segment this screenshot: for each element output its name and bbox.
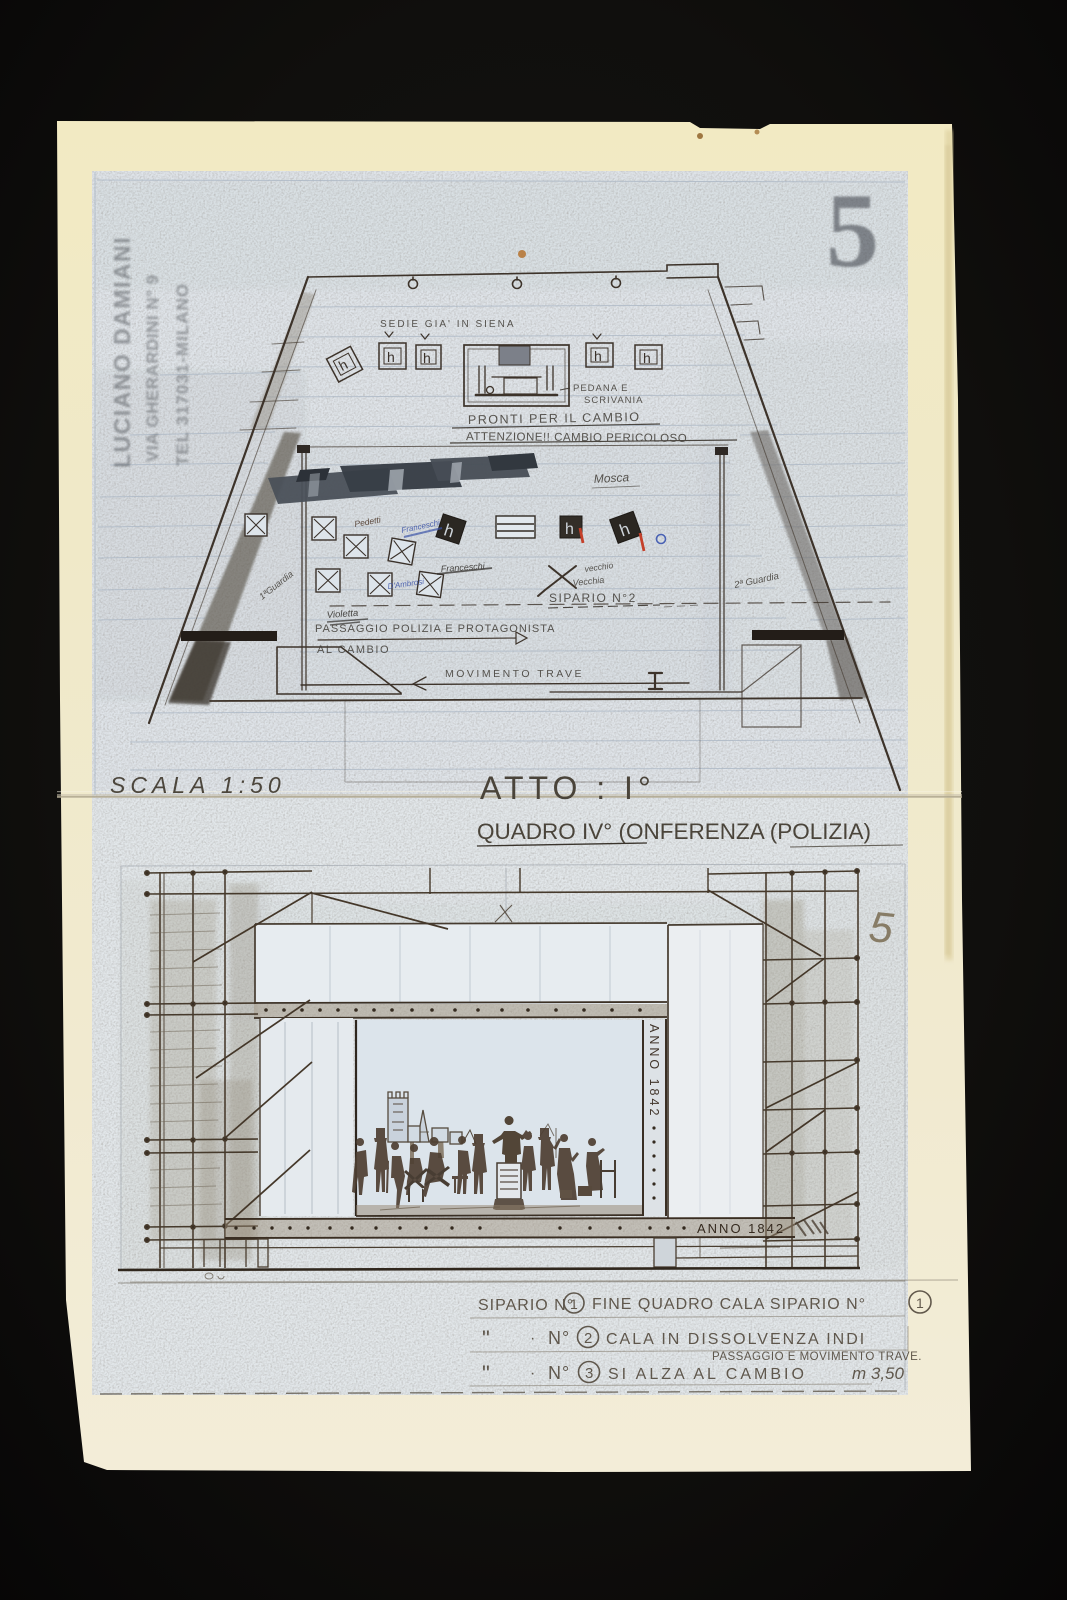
svg-text:SI ALZA AL CAMBIO: SI ALZA AL CAMBIO (608, 1366, 807, 1383)
svg-text:N°: N° (548, 1328, 570, 1348)
svg-text:h: h (594, 348, 602, 364)
svg-text:LUCIANO DAMIANI: LUCIANO DAMIANI (109, 236, 135, 468)
svg-text:Mosca: Mosca (593, 470, 629, 486)
svg-text:·: · (530, 1330, 535, 1347)
svg-text:MOVIMENTO TRAVE: MOVIMENTO TRAVE (445, 668, 584, 680)
svg-text:SEDIE GIA' IN SIENA: SEDIE GIA' IN SIENA (380, 319, 516, 330)
svg-text:": " (482, 1326, 491, 1351)
svg-text:SCALA 1:50: SCALA 1:50 (110, 772, 286, 798)
svg-text:CALA IN DISSOLVENZA INDI: CALA IN DISSOLVENZA INDI (606, 1331, 866, 1348)
svg-text:ATTO : I°: ATTO : I° (480, 770, 656, 806)
svg-text:ANNO 1842: ANNO 1842 (697, 1221, 785, 1236)
svg-text:ANNO 1842: ANNO 1842 (647, 1024, 661, 1118)
svg-text:PASSAGGIO E MOVIMENTO TRAVE.: PASSAGGIO E MOVIMENTO TRAVE. (712, 1351, 922, 1363)
svg-text:m 3,50: m 3,50 (852, 1364, 905, 1383)
svg-text:1: 1 (570, 1296, 578, 1312)
svg-text:SCRIVANIA: SCRIVANIA (584, 395, 644, 406)
svg-text:SIPARIO N°2: SIPARIO N°2 (549, 591, 637, 605)
svg-text:h: h (423, 350, 431, 366)
svg-text:": " (482, 1361, 491, 1386)
svg-text:Violetta: Violetta (326, 608, 358, 621)
svg-text:h: h (565, 521, 574, 538)
svg-text:TEL 317031-MILANO: TEL 317031-MILANO (173, 283, 192, 466)
svg-text:2: 2 (584, 1330, 592, 1347)
svg-text:h: h (643, 350, 651, 366)
svg-text:h: h (387, 349, 395, 365)
svg-text:·: · (530, 1365, 535, 1382)
svg-text:3: 3 (585, 1365, 593, 1382)
svg-text:AL CAMBIO: AL CAMBIO (317, 644, 390, 656)
svg-text:SIPARIO N°: SIPARIO N° (478, 1297, 574, 1314)
svg-text:VIA GHERARDINI N° 9: VIA GHERARDINI N° 9 (143, 274, 162, 462)
svg-text:N°: N° (548, 1363, 570, 1383)
svg-text:5: 5 (826, 172, 879, 289)
svg-text:PASSAGGIO POLIZIA E PROTAGONIS: PASSAGGIO POLIZIA E PROTAGONISTA (315, 623, 555, 635)
svg-text:QUADRO IV° (ONFERENZA (POLIZIA: QUADRO IV° (ONFERENZA (POLIZIA) (477, 819, 871, 844)
svg-text:FINE QUADRO CALA SIPARIO N°: FINE QUADRO CALA SIPARIO N° (592, 1296, 866, 1313)
svg-text:1: 1 (916, 1295, 924, 1311)
svg-text:PEDANA E: PEDANA E (573, 383, 629, 394)
